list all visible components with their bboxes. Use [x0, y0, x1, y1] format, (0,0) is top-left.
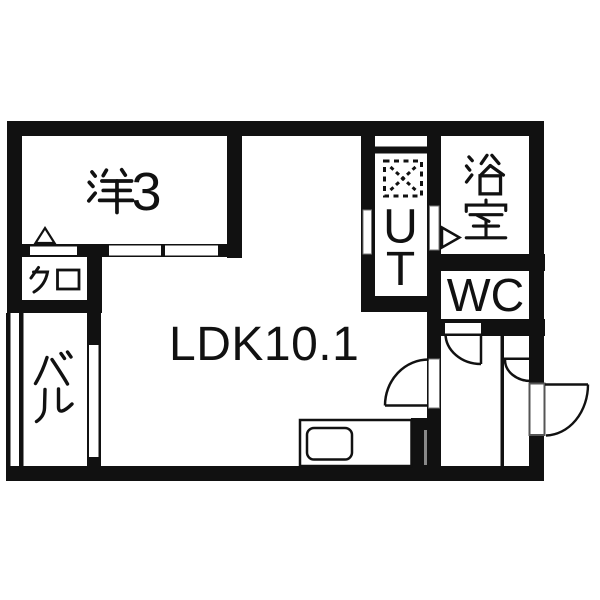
svg-text:T: T: [386, 243, 415, 296]
svg-text:LDK10.1: LDK10.1: [169, 318, 359, 371]
svg-text:3: 3: [131, 162, 161, 222]
svg-text:WC: WC: [447, 269, 524, 321]
